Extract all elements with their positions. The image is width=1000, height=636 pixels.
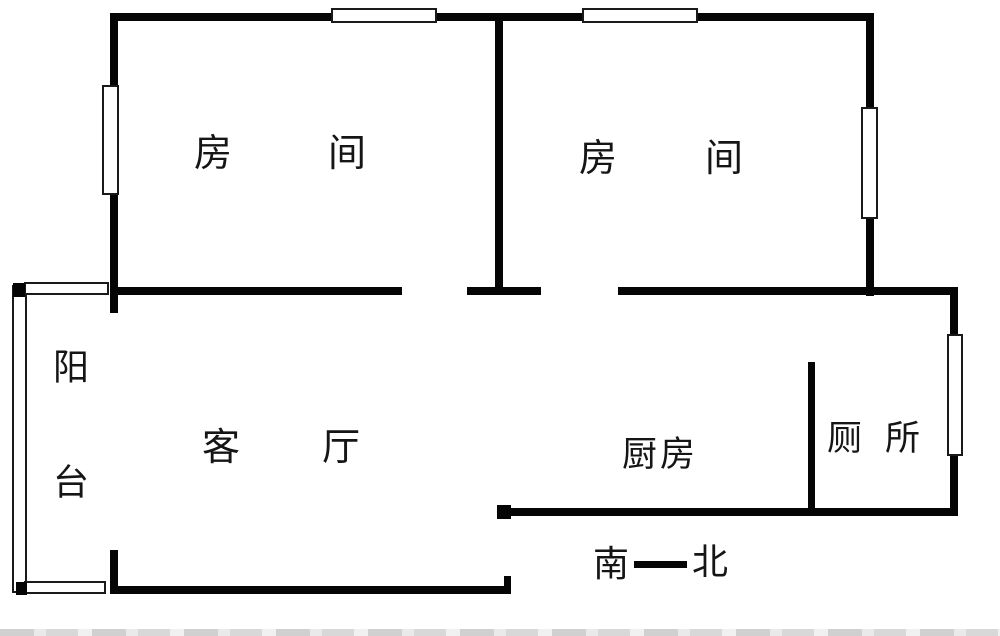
room-label-living-room: 客厅 <box>202 429 442 467</box>
window-top-right <box>582 8 698 23</box>
wall-top-exterior <box>110 13 874 21</box>
balcony-corner-block-top <box>13 283 25 297</box>
balcony-rail-left <box>12 285 27 593</box>
window-top-left <box>331 8 437 23</box>
compass-south-label: 南 <box>593 546 629 582</box>
compass-north-label: 北 <box>692 544 728 580</box>
door-post-kitchen-corner <box>497 505 511 519</box>
room-label-toilet: 厕所 <box>827 421 943 456</box>
window-toilet-right <box>947 334 963 456</box>
balcony-window-bottom <box>24 581 106 594</box>
door-jamb-entry <box>504 576 511 594</box>
wall-bedrooms-divider <box>495 13 503 294</box>
balcony-corner-block-bottom <box>16 582 27 595</box>
wall-living-bottom <box>110 586 511 594</box>
wall-interior-right-segment <box>618 287 958 295</box>
window-bedroom1-left <box>102 85 119 195</box>
room-label-bedroom-2: 房间 <box>579 140 831 178</box>
floor-plan: 房间 房间 阳台 客厅 厨房 厕所 南 北 <box>0 0 1000 636</box>
wall-balcony-right-stub <box>110 550 118 594</box>
wall-interior-mid-segment <box>467 287 541 295</box>
wall-kitchen-toilet-divider <box>808 362 815 514</box>
wall-kitchen-bottom <box>504 508 958 516</box>
balcony-window-top <box>24 282 109 295</box>
wall-interior-left-segment <box>110 287 402 295</box>
room-label-balcony: 阳台 <box>50 348 86 578</box>
room-label-bedroom-1: 房间 <box>194 135 462 173</box>
scan-artifact-band <box>0 629 1000 636</box>
window-bedroom2-right <box>861 107 878 219</box>
room-label-kitchen: 厨房 <box>622 437 698 472</box>
compass-line <box>634 561 687 568</box>
